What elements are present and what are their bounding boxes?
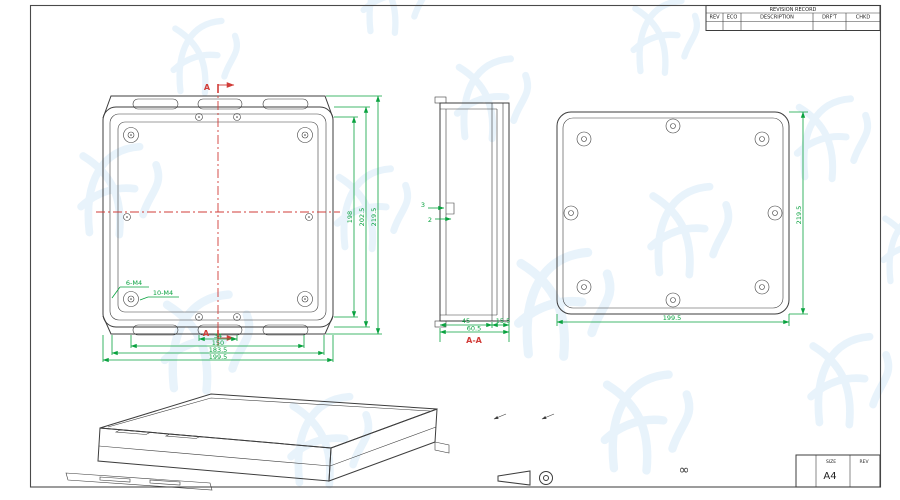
rear-dim-height: 219.5 bbox=[795, 206, 803, 225]
projection-symbols: ∞ bbox=[494, 414, 689, 485]
callout-6-m4: 6-M4 bbox=[126, 279, 142, 287]
iso-top-face bbox=[100, 394, 437, 448]
revision-col-drft: DRF'T bbox=[822, 15, 838, 21]
revision-col-description: DESCRIPTION bbox=[760, 15, 794, 21]
section-outline bbox=[440, 103, 509, 321]
dim-198: 198 bbox=[346, 211, 354, 223]
dim-199-5: 199.5 bbox=[209, 353, 228, 361]
callout-10-m4: 10-M4 bbox=[153, 289, 173, 297]
small-arrow-icon bbox=[542, 414, 554, 419]
size-value: A4 bbox=[823, 471, 836, 482]
projection-circle-icon bbox=[540, 472, 553, 485]
isometric-view bbox=[66, 394, 449, 490]
section-top-tab bbox=[435, 97, 446, 103]
dim-60-5: 60.5 bbox=[467, 325, 481, 333]
revision-col-eco: ECO bbox=[727, 15, 738, 21]
size-label: SIZE bbox=[826, 459, 836, 465]
iso-side-face bbox=[329, 409, 437, 481]
dim-15-5: 15.5 bbox=[496, 317, 510, 325]
section-label-bottom: A bbox=[203, 329, 210, 338]
dim-202-5: 202.5 bbox=[358, 208, 366, 227]
section-title: A-A bbox=[466, 336, 483, 345]
section-step-detail bbox=[446, 203, 454, 214]
sheet-border bbox=[31, 6, 881, 488]
front-view-width-dimensions: 34 150 183.5 199.5 bbox=[103, 332, 333, 362]
rev-label: REV bbox=[859, 459, 869, 465]
thread-callouts: 6-M4 10-M4 bbox=[112, 279, 179, 300]
infinity-symbol: ∞ bbox=[679, 463, 690, 478]
section-step-dimensions: 3 2 bbox=[421, 201, 451, 224]
rear-dim-width: 199.5 bbox=[663, 314, 682, 322]
revision-record-table: REVISION RECORD REV ECO DESCRIPTION DRF'… bbox=[706, 6, 880, 31]
small-arrow-icon bbox=[494, 414, 506, 419]
title-block: SIZE A4 REV bbox=[796, 455, 880, 487]
dim-3: 3 bbox=[421, 201, 425, 209]
section-label-top: A bbox=[204, 83, 211, 92]
section-bottom-tab bbox=[435, 321, 446, 327]
drawing-canvas: REVISION RECORD REV ECO DESCRIPTION DRF'… bbox=[0, 0, 900, 500]
dim-219-5: 219.5 bbox=[370, 208, 378, 227]
iso-side-tab bbox=[435, 442, 449, 453]
revision-col-rev: REV bbox=[709, 15, 720, 21]
watermark-layer bbox=[53, 0, 900, 497]
revision-col-chkd: CHKD bbox=[856, 15, 871, 21]
projection-cone-icon bbox=[498, 471, 530, 485]
front-view-height-dimensions: 198 202.5 219.5 bbox=[326, 96, 382, 334]
revision-table-title: REVISION RECORD bbox=[770, 7, 817, 13]
dim-2: 2 bbox=[428, 216, 432, 224]
cad-drawing-sheet: REVISION RECORD REV ECO DESCRIPTION DRF'… bbox=[0, 0, 900, 500]
